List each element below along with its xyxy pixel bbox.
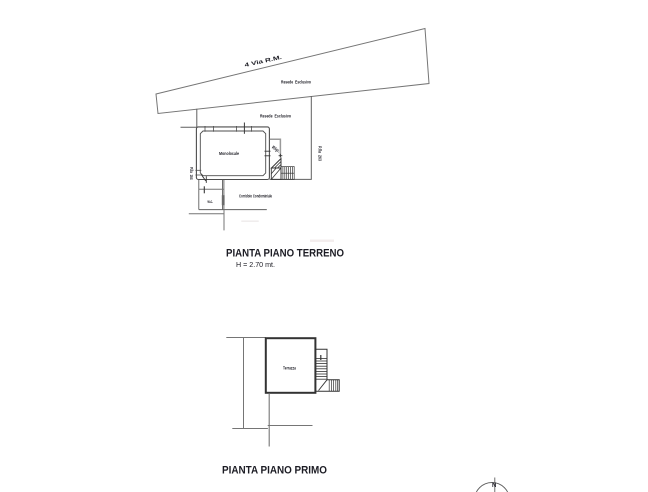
svg-text:PIANTA PIANO TERRENO: PIANTA PIANO TERRENO (226, 247, 344, 259)
svg-text:Corridoio Condominiale: Corridoio Condominiale (239, 194, 272, 200)
svg-text:H = 2.70 mt.: H = 2.70 mt. (236, 260, 275, 269)
svg-text:Resede Esclusivo: Resede Esclusivo (260, 114, 291, 120)
svg-text:PIANTA PIANO PRIMO: PIANTA PIANO PRIMO (222, 465, 327, 477)
svg-text:Monolocale: Monolocale (219, 151, 239, 157)
svg-text:Rip.: Rip. (271, 145, 281, 154)
svg-text:w.c.: w.c. (207, 200, 213, 205)
svg-text:P.lla 263: P.lla 263 (317, 146, 322, 161)
svg-text:N: N (492, 483, 496, 489)
svg-text:Resede Esclusivo: Resede Esclusivo (281, 80, 311, 86)
svg-text:Terrazza: Terrazza (283, 366, 296, 372)
svg-text:P.lla 164: P.lla 164 (189, 167, 194, 180)
